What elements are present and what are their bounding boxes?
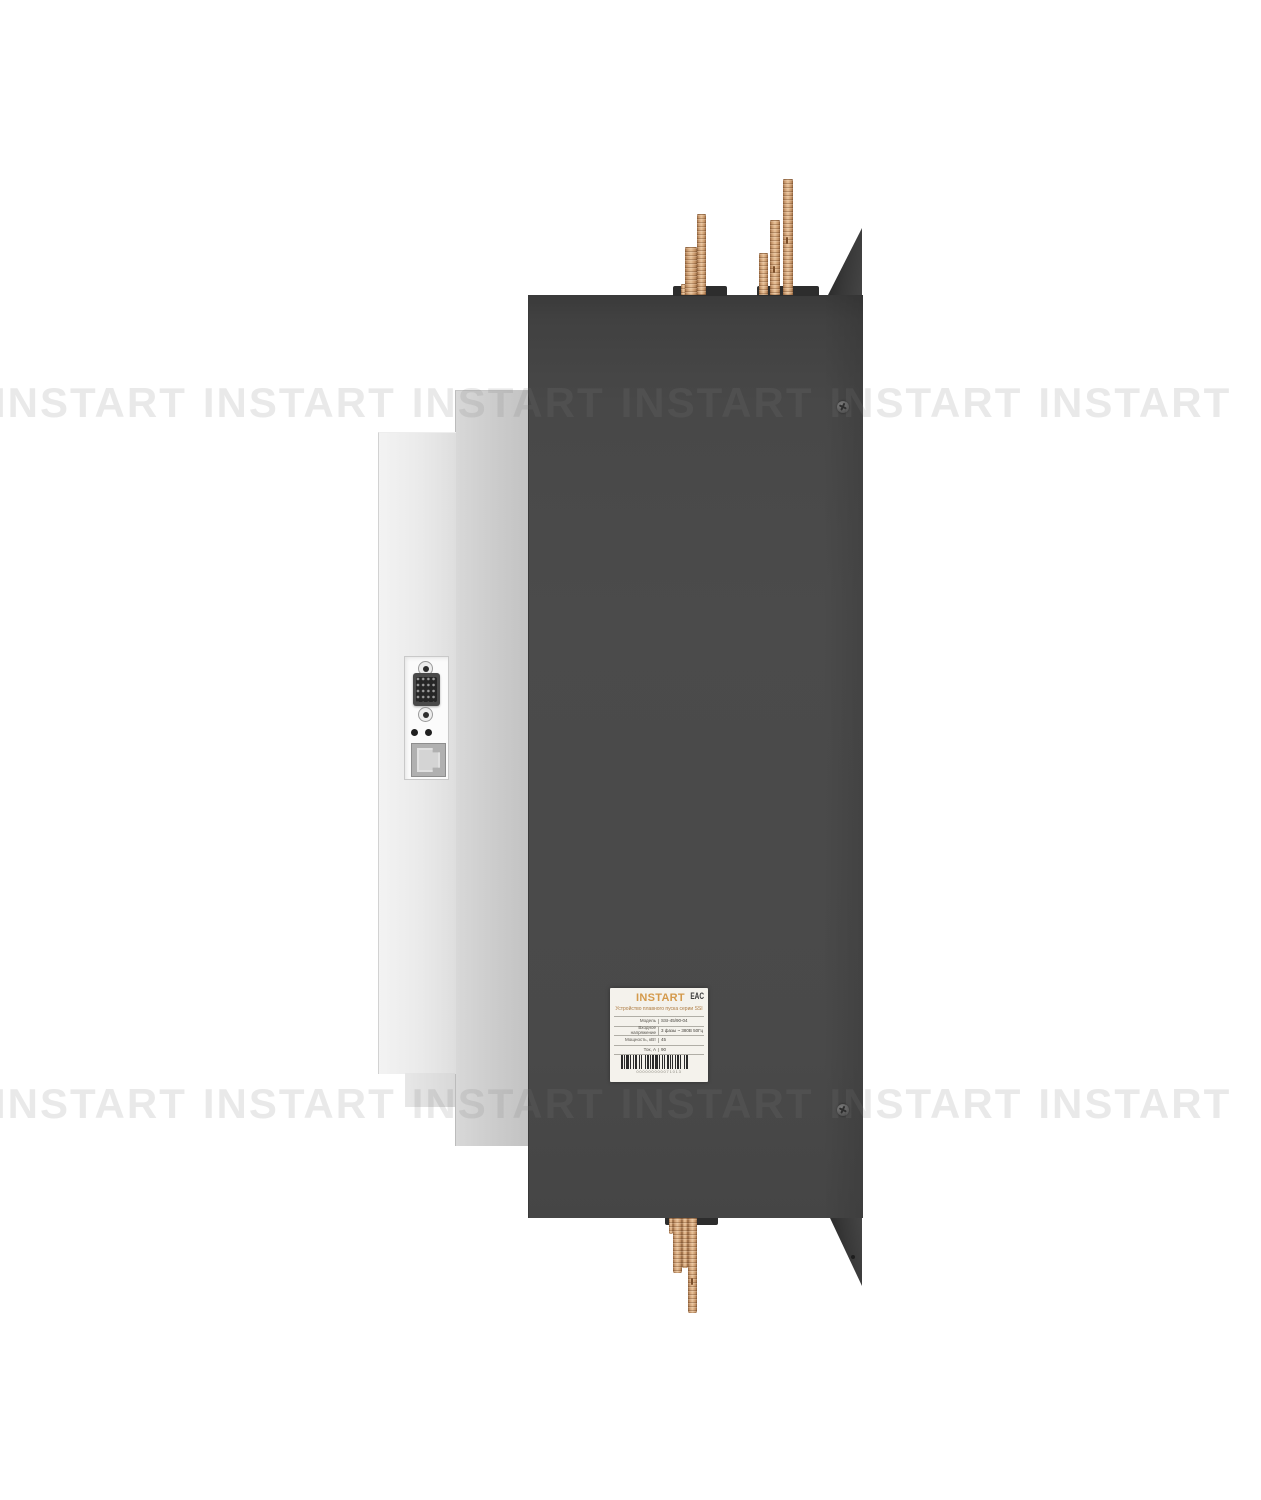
spec-name: Входное напряжение (614, 1026, 659, 1035)
phillips-screw-top (837, 401, 849, 413)
busbar-top-5 (783, 179, 793, 295)
spec-name: Модель (614, 1019, 659, 1024)
busbar-slot (691, 1278, 693, 1285)
spec-row-current: Ток, А 90 (614, 1046, 704, 1056)
barcode (621, 1055, 697, 1069)
watermark-text: INSTART (203, 1083, 396, 1125)
barcode-number: 000000000071013 (610, 1070, 708, 1074)
connector-recess (404, 656, 449, 780)
watermark-text: INSTART (203, 382, 396, 424)
busbar-top-2 (697, 214, 706, 295)
spec-row-power: Мощность, кВт 45 (614, 1036, 704, 1046)
flange-hole (851, 1255, 855, 1259)
watermark-text: INSTART (1038, 1083, 1231, 1125)
label-title: Устройство плавного пуска серии SSI (612, 1007, 706, 1013)
spec-name: Мощность, кВт (614, 1038, 659, 1043)
watermark-text: INSTART (0, 1083, 187, 1125)
spec-row-model: Модель SSI-45/90-04 (614, 1017, 704, 1027)
mounting-flange-top (828, 228, 862, 295)
busbar-slot (773, 266, 775, 273)
vga-connector (413, 673, 440, 706)
watermark-text: INSTART (0, 382, 187, 424)
spec-value: 3 фазы ~ 380В 50Гц (659, 1029, 704, 1034)
busbar-bottom-3 (688, 1218, 697, 1313)
spec-row-voltage: Входное напряжение 3 фазы ~ 380В 50Гц (614, 1027, 704, 1037)
busbar-top-1 (685, 247, 697, 295)
vga-screw-post-bottom (418, 707, 433, 722)
status-led-1 (411, 729, 418, 736)
eac-certification-mark: EAC (690, 992, 704, 1001)
busbar-top-3 (759, 253, 768, 295)
spec-table: Модель SSI-45/90-04 Входное напряжение 3… (614, 1016, 704, 1055)
rj45-jack-outline (417, 748, 440, 772)
phillips-screw-bottom (837, 1104, 849, 1116)
product-photo-stage: INSTART EAC Устройство плавного пуска се… (0, 0, 1261, 1500)
device-mid-panel (455, 390, 531, 1146)
device-front-cover-step (405, 1073, 455, 1107)
label-brand-logo: INSTART (636, 993, 685, 1004)
busbar-top-4 (770, 220, 780, 295)
spec-value: SSI-45/90-04 (659, 1019, 704, 1024)
busbar-bottom-1 (673, 1218, 682, 1273)
spec-value: 45 (659, 1038, 704, 1043)
rj45-port (411, 743, 446, 777)
status-led-2 (425, 729, 432, 736)
vga-pin-grid (416, 677, 437, 702)
busbar-slot (786, 237, 788, 244)
spec-value: 90 (659, 1048, 704, 1053)
spec-name: Ток, А (614, 1048, 659, 1053)
product-label: INSTART EAC Устройство плавного пуска се… (610, 988, 708, 1082)
watermark-text: INSTART (1038, 382, 1231, 424)
mounting-flange-bottom (830, 1218, 862, 1286)
